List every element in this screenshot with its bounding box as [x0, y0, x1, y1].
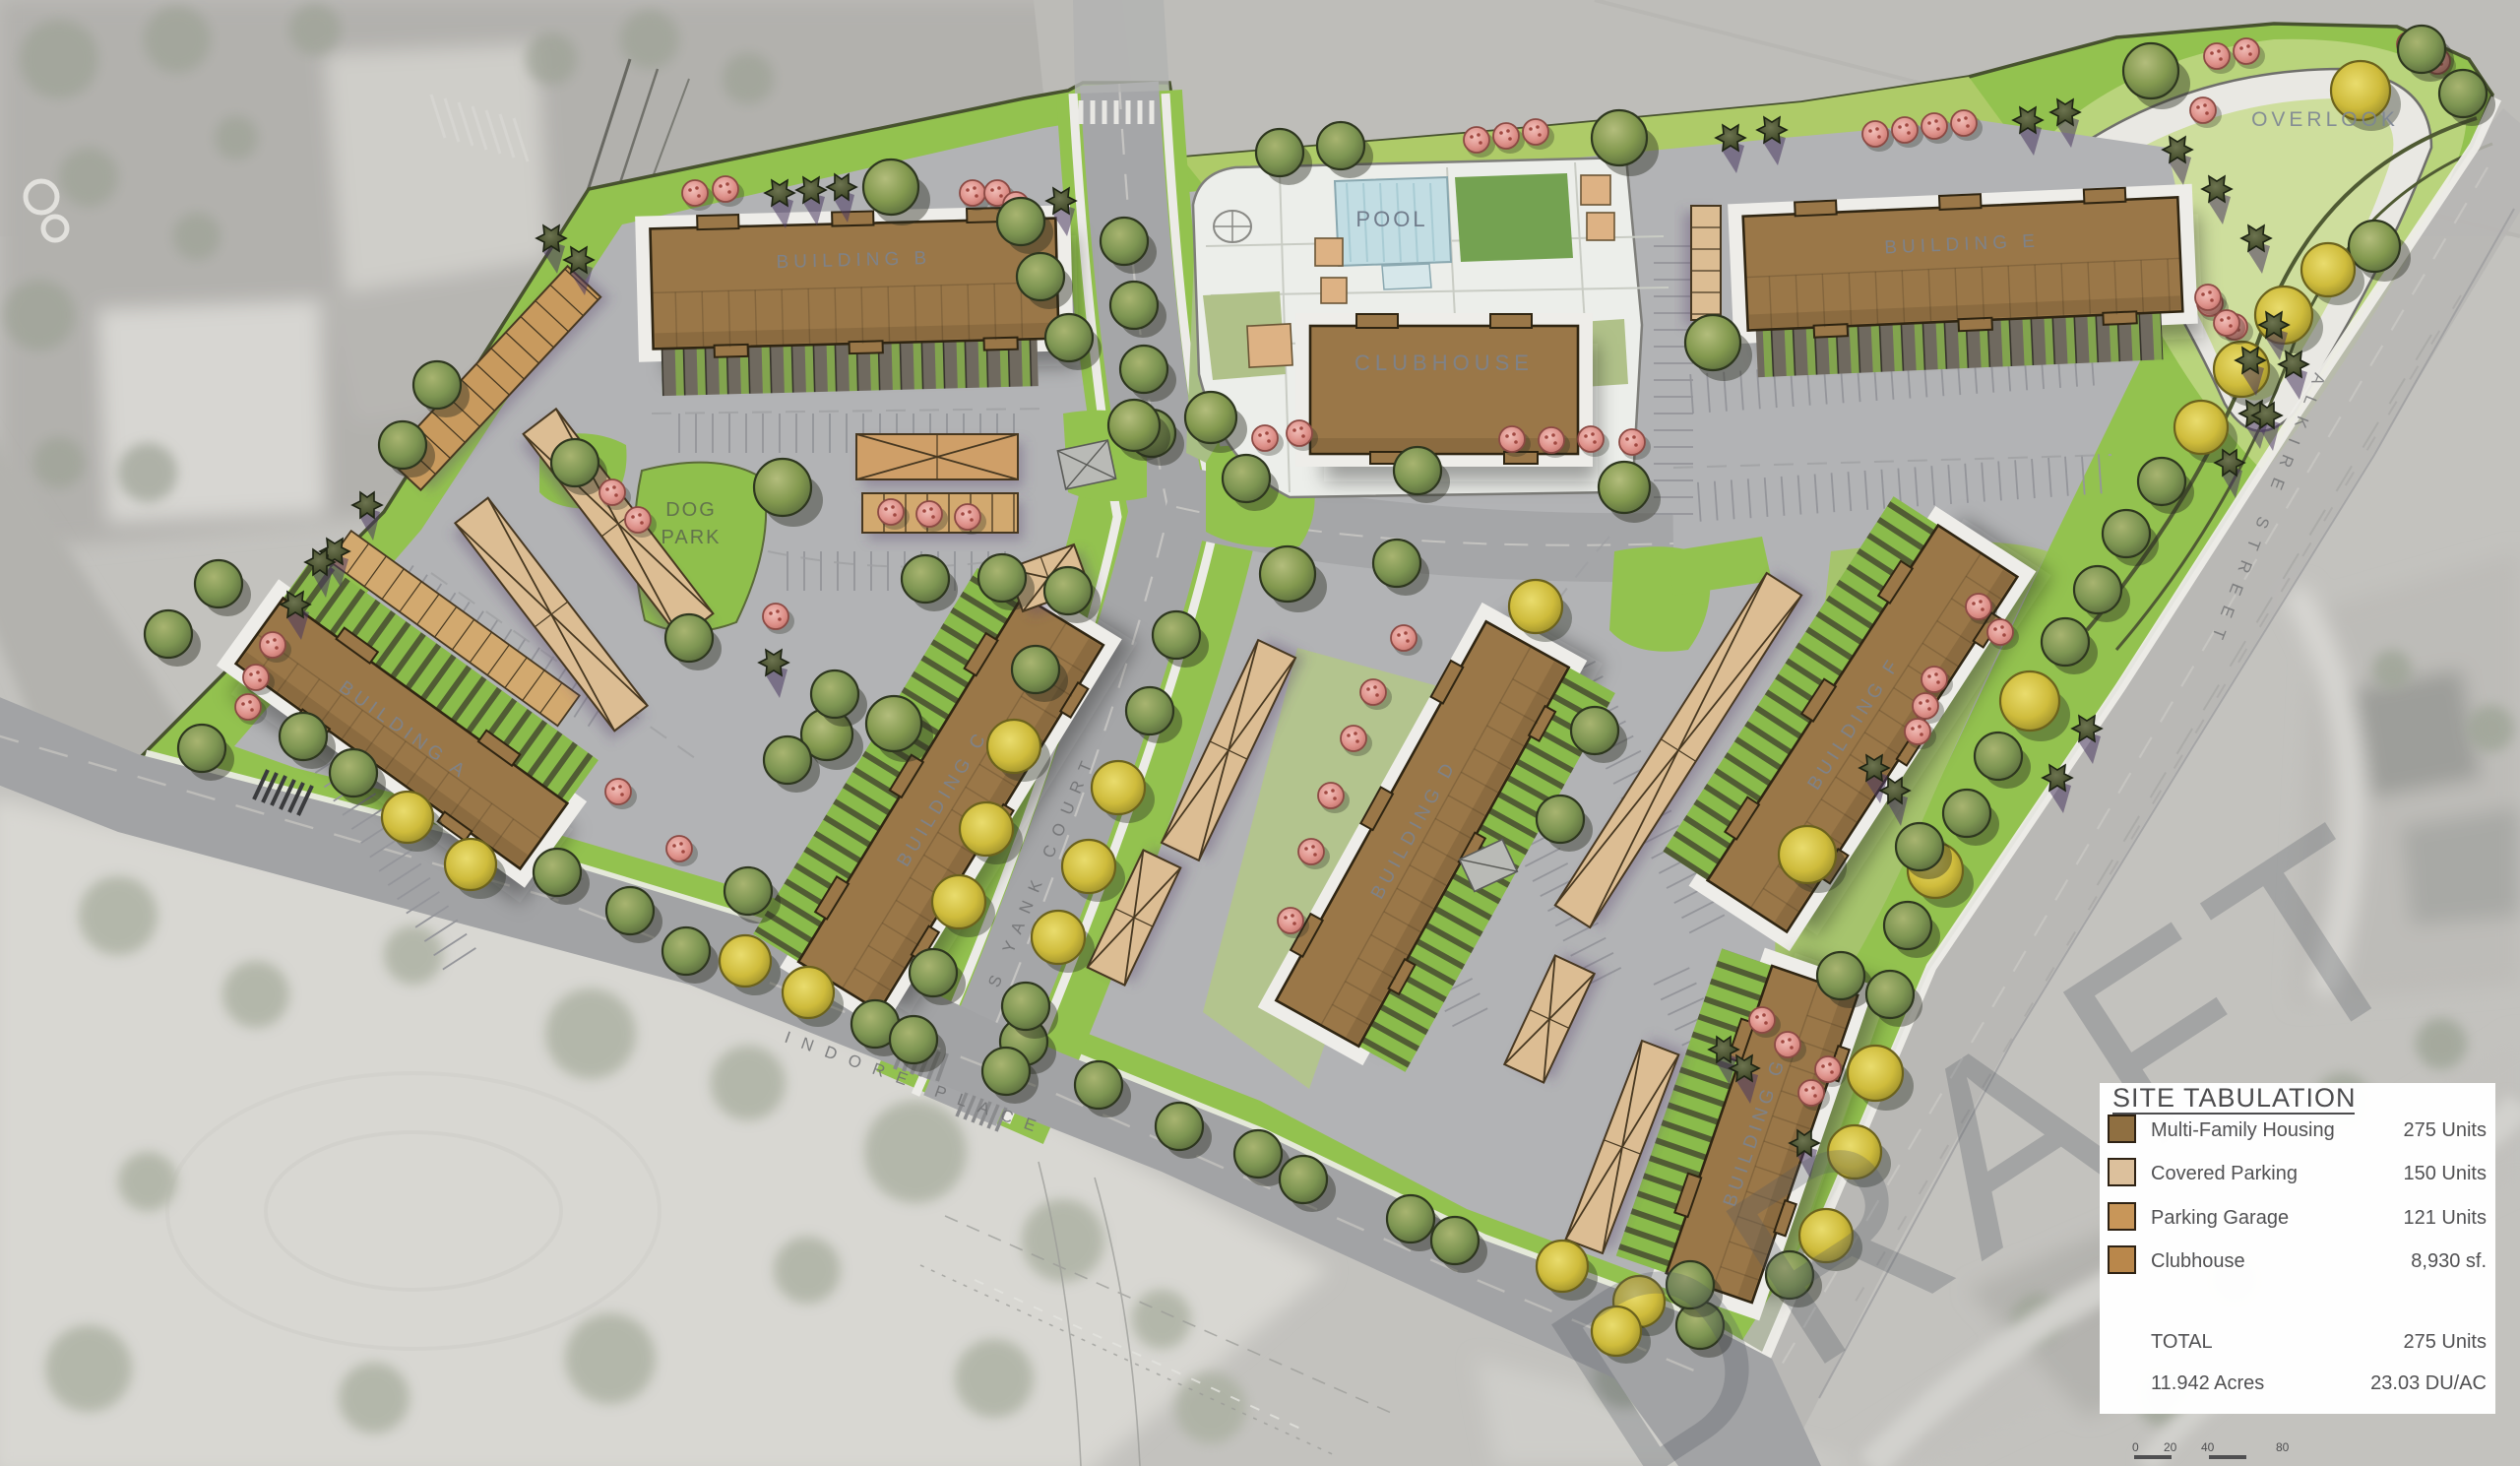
svg-text:TOTAL: TOTAL	[2151, 1331, 2213, 1353]
svg-text:275 Units: 275 Units	[2404, 1331, 2488, 1353]
svg-text:DOG: DOG	[665, 499, 717, 521]
svg-text:8,930 sf.: 8,930 sf.	[2411, 1250, 2487, 1272]
svg-text:Multi-Family Housing: Multi-Family Housing	[2151, 1119, 2335, 1141]
svg-text:11.942 Acres: 11.942 Acres	[2151, 1372, 2264, 1394]
svg-text:20: 20	[2164, 1440, 2177, 1454]
svg-text:121 Units: 121 Units	[2404, 1207, 2488, 1229]
svg-text:40: 40	[2201, 1440, 2215, 1454]
svg-text:Covered Parking: Covered Parking	[2151, 1163, 2298, 1184]
svg-text:SITE TABULATION: SITE TABULATION	[2112, 1083, 2357, 1113]
svg-text:Parking Garage: Parking Garage	[2151, 1207, 2289, 1229]
svg-text:275 Units: 275 Units	[2404, 1119, 2488, 1141]
svg-text:0: 0	[2132, 1440, 2139, 1454]
svg-text:150 Units: 150 Units	[2404, 1163, 2488, 1184]
svg-text:CLUBHOUSE: CLUBHOUSE	[1354, 351, 1534, 375]
svg-text:PARK: PARK	[661, 527, 722, 548]
svg-text:POOL: POOL	[1355, 207, 1427, 231]
svg-text:23.03 DU/AC: 23.03 DU/AC	[2370, 1372, 2487, 1394]
svg-text:BUILDING B: BUILDING B	[776, 248, 931, 273]
svg-text:Clubhouse: Clubhouse	[2151, 1250, 2245, 1272]
svg-text:OVERLOOK: OVERLOOK	[2251, 108, 2399, 131]
svg-text:80: 80	[2276, 1440, 2290, 1454]
